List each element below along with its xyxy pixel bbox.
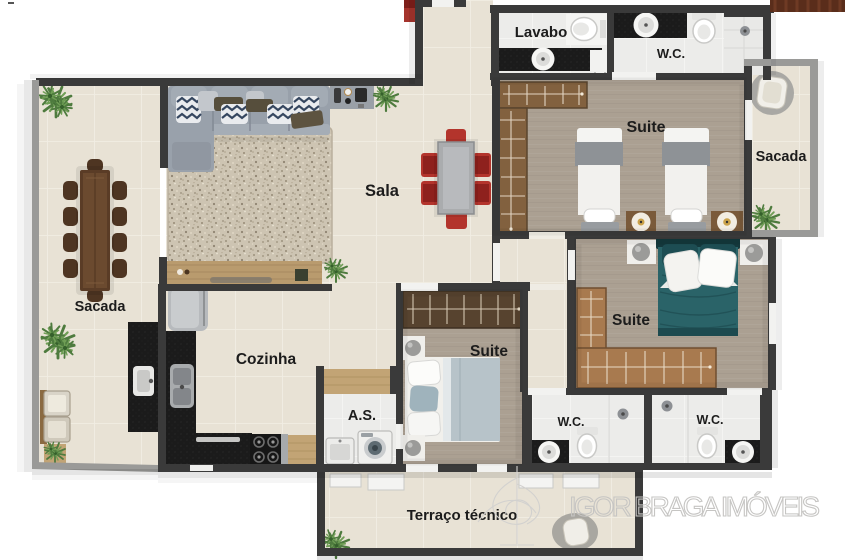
svg-text:Cozinha: Cozinha: [236, 351, 297, 368]
svg-text:W.C.: W.C.: [696, 413, 723, 427]
svg-text:Suite: Suite: [626, 119, 665, 136]
svg-text:A.S.: A.S.: [348, 408, 376, 424]
svg-text:Terraço técnico: Terraço técnico: [407, 507, 518, 524]
svg-text:W.C.: W.C.: [657, 46, 685, 61]
svg-text:Sala: Sala: [365, 182, 400, 200]
svg-text:Suite: Suite: [612, 312, 650, 329]
svg-text:Sacada: Sacada: [756, 149, 808, 165]
svg-text:Sacada: Sacada: [75, 299, 127, 315]
svg-text:Suite: Suite: [470, 343, 508, 360]
svg-text:Lavabo: Lavabo: [515, 24, 568, 41]
svg-text:IGOR BRAGA IMÓVEIS: IGOR BRAGA IMÓVEIS: [569, 491, 821, 522]
svg-text:W.C.: W.C.: [557, 415, 584, 429]
